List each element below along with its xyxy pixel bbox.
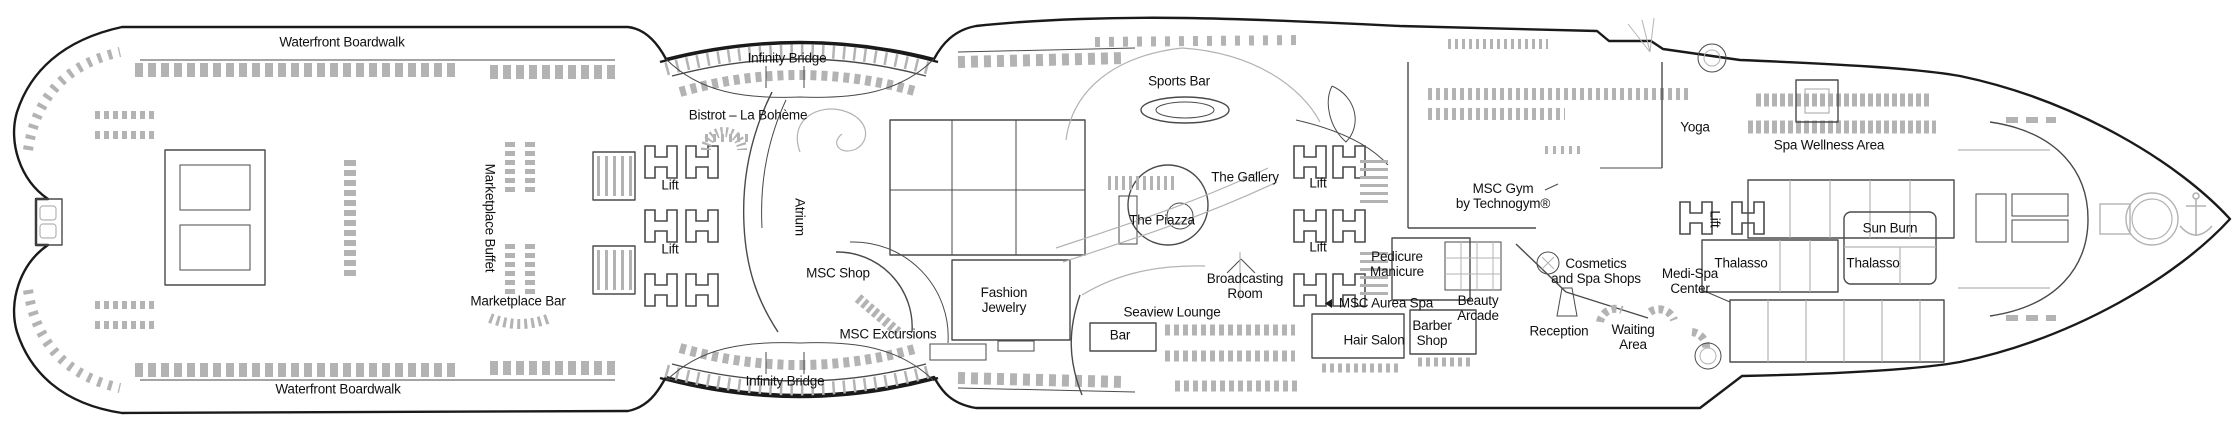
label-spa-wellness-area: Spa Wellness Area — [1774, 139, 1884, 154]
label-bistrot-la-boheme: Bistrot – La Bohème — [689, 109, 808, 124]
label-sports-bar: Sports Bar — [1148, 75, 1210, 90]
label-cosmetics-and-spa-shops: Cosmetics and Spa Shops — [1551, 257, 1641, 287]
label-the-gallery: The Gallery — [1211, 171, 1279, 186]
label-marketplace-bar: Marketplace Bar — [470, 295, 565, 310]
label-pedicure-manicure: Pedicure Manicure — [1370, 250, 1424, 280]
bistrot-pool-squiggle — [797, 109, 865, 152]
leaf-lounge — [1328, 86, 1355, 142]
shop-wall — [836, 252, 912, 332]
label-atrium: Atrium — [792, 198, 807, 236]
label-msc-aurea-spa: MSC Aurea Spa — [1339, 297, 1433, 312]
anchor-icon — [2180, 193, 2212, 236]
label-msc-gym: MSC Gym by Technogym® — [1456, 182, 1550, 212]
bow-area — [1958, 120, 2212, 318]
label-reception: Reception — [1530, 325, 1589, 340]
label-bar: Bar — [1110, 329, 1130, 344]
spa-area — [1516, 18, 1954, 369]
label-lift-aft-upper: Lift — [661, 179, 678, 194]
label-the-piazza: The Piazza — [1129, 214, 1195, 229]
label-broadcasting-room: Broadcasting Room — [1207, 272, 1283, 302]
label-sun-burn: Sun Burn — [1863, 222, 1918, 237]
atrium-shop-area — [705, 92, 1085, 360]
label-fashion-jewelry: Fashion Jewelry — [981, 286, 1028, 316]
label-infinity-bridge-top: Infinity Bridge — [748, 52, 827, 67]
lift-icon — [686, 146, 718, 178]
treatment-rooms — [1748, 180, 1954, 238]
label-waiting-area: Waiting Area — [1611, 323, 1654, 353]
lift-icon — [1294, 274, 1326, 306]
label-infinity-bridge-bottom: Infinity Bridge — [746, 375, 825, 390]
label-medi-spa-center: Medi-Spa Center — [1662, 267, 1718, 297]
label-hair-salon: Hair Salon — [1343, 334, 1404, 349]
label-msc-excursions: MSC Excursions — [840, 328, 937, 343]
label-seaview-lounge: Seaview Lounge — [1123, 306, 1220, 321]
lift-icon — [686, 210, 718, 242]
label-msc-shop: MSC Shop — [806, 267, 870, 282]
deck-plan: Waterfront Boardwalk Infinity Bridge Bis… — [0, 0, 2232, 440]
label-lift-mid-upper: Lift — [1309, 177, 1326, 192]
label-lift-mid-lower: Lift — [1309, 241, 1326, 256]
label-thalasso-starboard: Thalasso — [1846, 257, 1899, 272]
label-waterfront-boardwalk-top: Waterfront Boardwalk — [279, 36, 404, 51]
lift-icon — [1294, 210, 1326, 242]
gym-equipment-rows — [1428, 94, 1688, 114]
piazza-circle — [1128, 165, 1208, 245]
spa-lounger-rows — [1748, 100, 1936, 127]
lift-icon — [645, 274, 677, 306]
atrium-wall — [744, 92, 778, 332]
spa-treatment-rooms-lower — [1730, 300, 1944, 362]
excursions-desk — [930, 344, 986, 360]
label-thalasso-port: Thalasso — [1714, 257, 1767, 272]
label-beauty-arcade: Beauty Arcade — [1457, 294, 1499, 324]
lift-icon — [1333, 210, 1365, 242]
bow-room-wall — [1990, 122, 2088, 316]
label-lift-spa: Lift — [1707, 210, 1722, 227]
helipad-circle — [2126, 193, 2178, 245]
midship-room-block — [890, 120, 1085, 255]
lift-icon — [1294, 146, 1326, 178]
label-yoga: Yoga — [1680, 121, 1710, 136]
label-barber-shop: Barber Shop — [1412, 319, 1451, 349]
label-lift-aft-lower: Lift — [661, 243, 678, 258]
label-waterfront-boardwalk-bottom: Waterfront Boardwalk — [275, 383, 400, 398]
lift-icon — [645, 210, 677, 242]
lift-icon — [645, 146, 677, 178]
sports-bar-oval — [1141, 97, 1229, 123]
lift-icon — [686, 274, 718, 306]
label-marketplace-buffet: Marketplace Buffet — [482, 164, 497, 273]
